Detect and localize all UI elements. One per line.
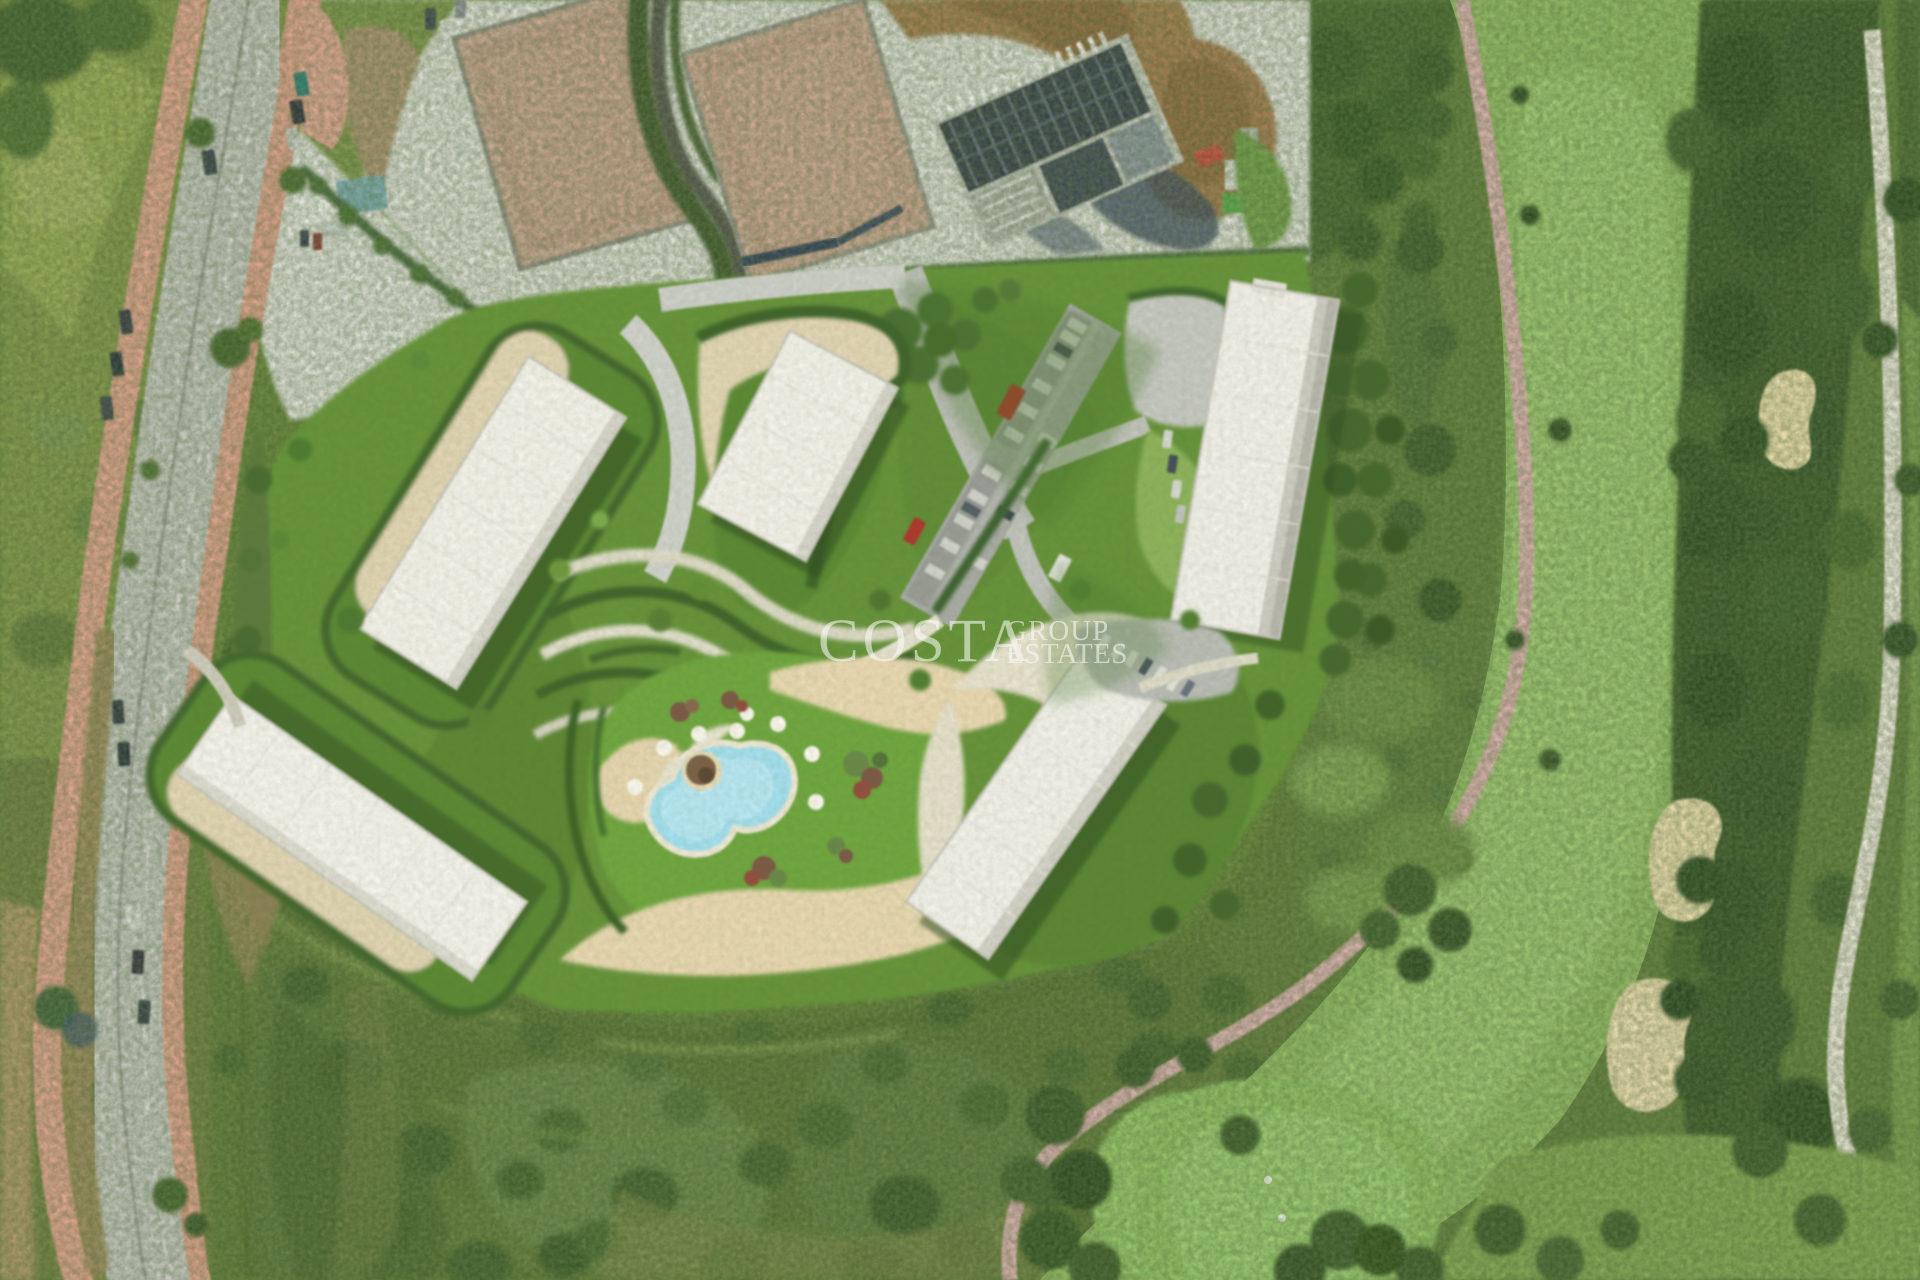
svg-text:ESTATES: ESTATES xyxy=(1006,638,1128,670)
svg-text:COSTA: COSTA xyxy=(818,608,1033,675)
